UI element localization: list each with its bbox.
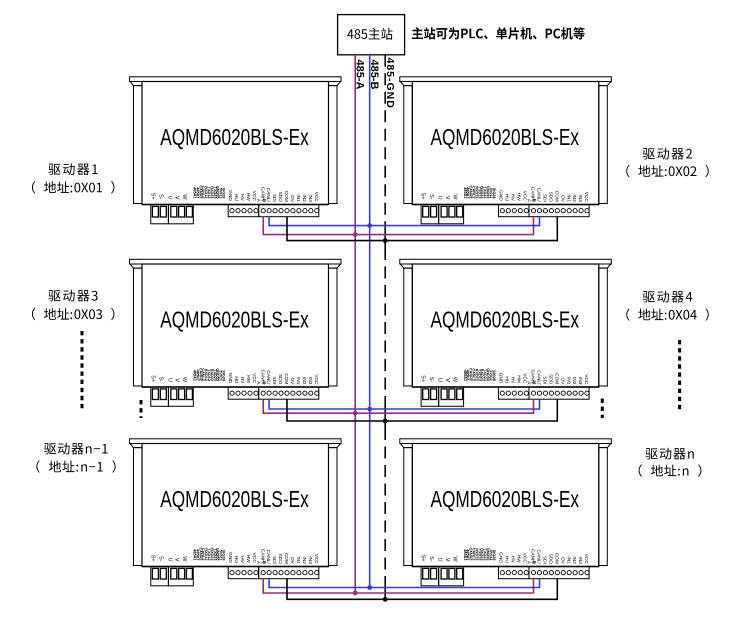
svg-text:HU: HU	[503, 556, 509, 563]
svg-text:HU: HU	[233, 376, 239, 383]
svg-text:OV: OV	[559, 377, 565, 385]
svg-text:SDO: SDO	[548, 374, 554, 385]
svg-text:HV: HV	[239, 556, 245, 563]
svg-text:SDI: SDI	[542, 194, 548, 202]
svg-text:HW: HW	[245, 555, 251, 563]
svg-text:HW: HW	[245, 193, 251, 201]
svg-text:485-A: 485-A	[354, 60, 366, 90]
svg-text:IN2: IN2	[301, 194, 307, 202]
svg-text:GND: GND	[497, 373, 503, 384]
svg-text:HU: HU	[233, 556, 239, 563]
svg-text:HU: HU	[503, 194, 509, 201]
svg-text:V: V	[444, 378, 450, 382]
svg-text:S-: S-	[158, 194, 164, 200]
svg-text:COM: COM	[553, 373, 559, 384]
svg-text:SDI: SDI	[542, 376, 548, 384]
svg-text:GND: GND	[227, 552, 233, 563]
svg-text:IN1: IN1	[565, 556, 571, 564]
svg-text:HW: HW	[515, 555, 521, 563]
svg-text:IN1: IN1	[295, 194, 301, 202]
svg-text:HV: HV	[509, 377, 515, 384]
svg-text:HV: HV	[239, 377, 245, 384]
svg-text:COM: COM	[283, 373, 289, 384]
svg-text:A: A	[525, 199, 531, 203]
svg-text:VCC: VCC	[583, 374, 589, 385]
svg-text:VCC: VCC	[313, 554, 319, 565]
svg-text:W: W	[452, 194, 458, 200]
svg-text:COM: COM	[283, 553, 289, 564]
svg-text:W: W	[452, 377, 458, 383]
svg-text:HU: HU	[233, 194, 239, 201]
svg-text:A: A	[255, 199, 261, 203]
svg-text:IN3: IN3	[307, 377, 313, 385]
svg-text:SDI: SDI	[542, 556, 548, 564]
svg-text:SDO: SDO	[548, 553, 554, 564]
svg-text:IN3: IN3	[307, 194, 313, 202]
svg-text:S-: S-	[428, 377, 434, 383]
svg-text:SIG28: SIG28	[222, 550, 226, 561]
svg-text:GND: GND	[497, 190, 503, 201]
svg-text:OV: OV	[289, 195, 295, 203]
svg-text:HV: HV	[239, 194, 245, 201]
svg-text:AQMD6020BLS-Ex: AQMD6020BLS-Ex	[160, 486, 309, 512]
svg-text:HW: HW	[515, 193, 521, 201]
svg-text:S-: S-	[158, 377, 164, 383]
svg-text:S-: S-	[158, 556, 164, 562]
svg-text:VCC: VCC	[583, 554, 589, 565]
svg-text:OV: OV	[559, 557, 565, 565]
svg-text:IN2: IN2	[571, 194, 577, 202]
svg-text:S-: S-	[428, 194, 434, 200]
svg-text:OV: OV	[289, 557, 295, 565]
svg-text:GND: GND	[497, 552, 503, 563]
svg-text:SIG28: SIG28	[492, 550, 496, 561]
svg-text:COM: COM	[553, 553, 559, 564]
svg-text:SDO: SDO	[277, 553, 283, 564]
svg-text:IN3: IN3	[307, 556, 313, 564]
svg-text:S+: S+	[149, 555, 155, 562]
svg-text:IN1: IN1	[295, 377, 301, 385]
svg-text:GND: GND	[227, 190, 233, 201]
svg-text:B: B	[261, 561, 267, 564]
svg-text:IN2: IN2	[301, 556, 307, 564]
svg-text:W: W	[181, 194, 187, 200]
svg-text:B: B	[531, 561, 537, 564]
svg-text:COM: COM	[553, 191, 559, 202]
svg-text:SIG28: SIG28	[222, 370, 226, 381]
svg-text:W: W	[452, 556, 458, 562]
svg-text:VCC: VCC	[313, 374, 319, 385]
svg-text:SIG28: SIG28	[222, 188, 226, 199]
svg-text:IN3: IN3	[577, 377, 583, 385]
svg-text:AQMD6020BLS-Ex: AQMD6020BLS-Ex	[160, 306, 309, 332]
svg-text:W: W	[181, 556, 187, 562]
svg-text:HW: HW	[245, 375, 251, 383]
svg-text:AQMD6020BLS-Ex: AQMD6020BLS-Ex	[431, 306, 580, 332]
svg-text:U: U	[437, 196, 443, 200]
svg-text:SDO: SDO	[277, 191, 283, 202]
svg-text:S-: S-	[428, 556, 434, 562]
svg-text:S+: S+	[420, 375, 426, 382]
svg-text:HV: HV	[509, 556, 515, 563]
svg-text:IN2: IN2	[571, 377, 577, 385]
svg-text:V: V	[174, 378, 180, 382]
svg-text:S+: S+	[420, 555, 426, 562]
svg-text:V: V	[444, 558, 450, 562]
svg-text:SDI: SDI	[271, 194, 277, 202]
svg-text:A: A	[525, 381, 531, 385]
svg-text:IN3: IN3	[577, 194, 583, 202]
svg-text:HW: HW	[515, 375, 521, 383]
svg-text:COM: COM	[283, 191, 289, 202]
svg-text:IN1: IN1	[565, 194, 571, 202]
svg-text:U: U	[166, 378, 172, 382]
svg-text:IN2: IN2	[301, 377, 307, 385]
svg-text:485-GND: 485-GND	[384, 58, 396, 109]
svg-text:SDI: SDI	[271, 376, 277, 384]
svg-text:SDO: SDO	[277, 374, 283, 385]
svg-text:VCC: VCC	[313, 192, 319, 203]
svg-text:AQMD6020BLS-Ex: AQMD6020BLS-Ex	[160, 124, 309, 150]
svg-text:A: A	[525, 561, 531, 565]
svg-text:B: B	[261, 199, 267, 202]
svg-text:SDI: SDI	[271, 556, 277, 564]
svg-text:SDO: SDO	[548, 191, 554, 202]
svg-text:IN3: IN3	[577, 556, 583, 564]
svg-text:S+: S+	[420, 193, 426, 200]
svg-text:V: V	[174, 558, 180, 562]
svg-text:IN2: IN2	[571, 556, 577, 564]
svg-text:U: U	[437, 378, 443, 382]
svg-text:IN1: IN1	[565, 377, 571, 385]
svg-text:VCC: VCC	[583, 192, 589, 203]
svg-text:A: A	[255, 381, 261, 385]
svg-text:V: V	[174, 196, 180, 200]
svg-text:IN1: IN1	[295, 556, 301, 564]
svg-text:U: U	[437, 558, 443, 562]
svg-text:AQMD6020BLS-Ex: AQMD6020BLS-Ex	[431, 124, 580, 150]
svg-text:OV: OV	[289, 377, 295, 385]
svg-text:U: U	[166, 558, 172, 562]
svg-text:V: V	[444, 196, 450, 200]
svg-text:B: B	[531, 381, 537, 384]
svg-text:SIG28: SIG28	[492, 188, 496, 199]
svg-text:S+: S+	[149, 193, 155, 200]
svg-text:S+: S+	[149, 375, 155, 382]
svg-text:B: B	[531, 199, 537, 202]
svg-text:SIG28: SIG28	[492, 370, 496, 381]
svg-text:OV: OV	[559, 195, 565, 203]
svg-text:GND: GND	[227, 373, 233, 384]
svg-text:485-B: 485-B	[368, 60, 380, 90]
svg-text:W: W	[181, 377, 187, 383]
svg-text:HV: HV	[509, 194, 515, 201]
svg-text:HU: HU	[503, 376, 509, 383]
svg-text:B: B	[261, 381, 267, 384]
svg-text:A: A	[255, 561, 261, 565]
svg-text:AQMD6020BLS-Ex: AQMD6020BLS-Ex	[431, 486, 580, 512]
svg-text:U: U	[166, 196, 172, 200]
